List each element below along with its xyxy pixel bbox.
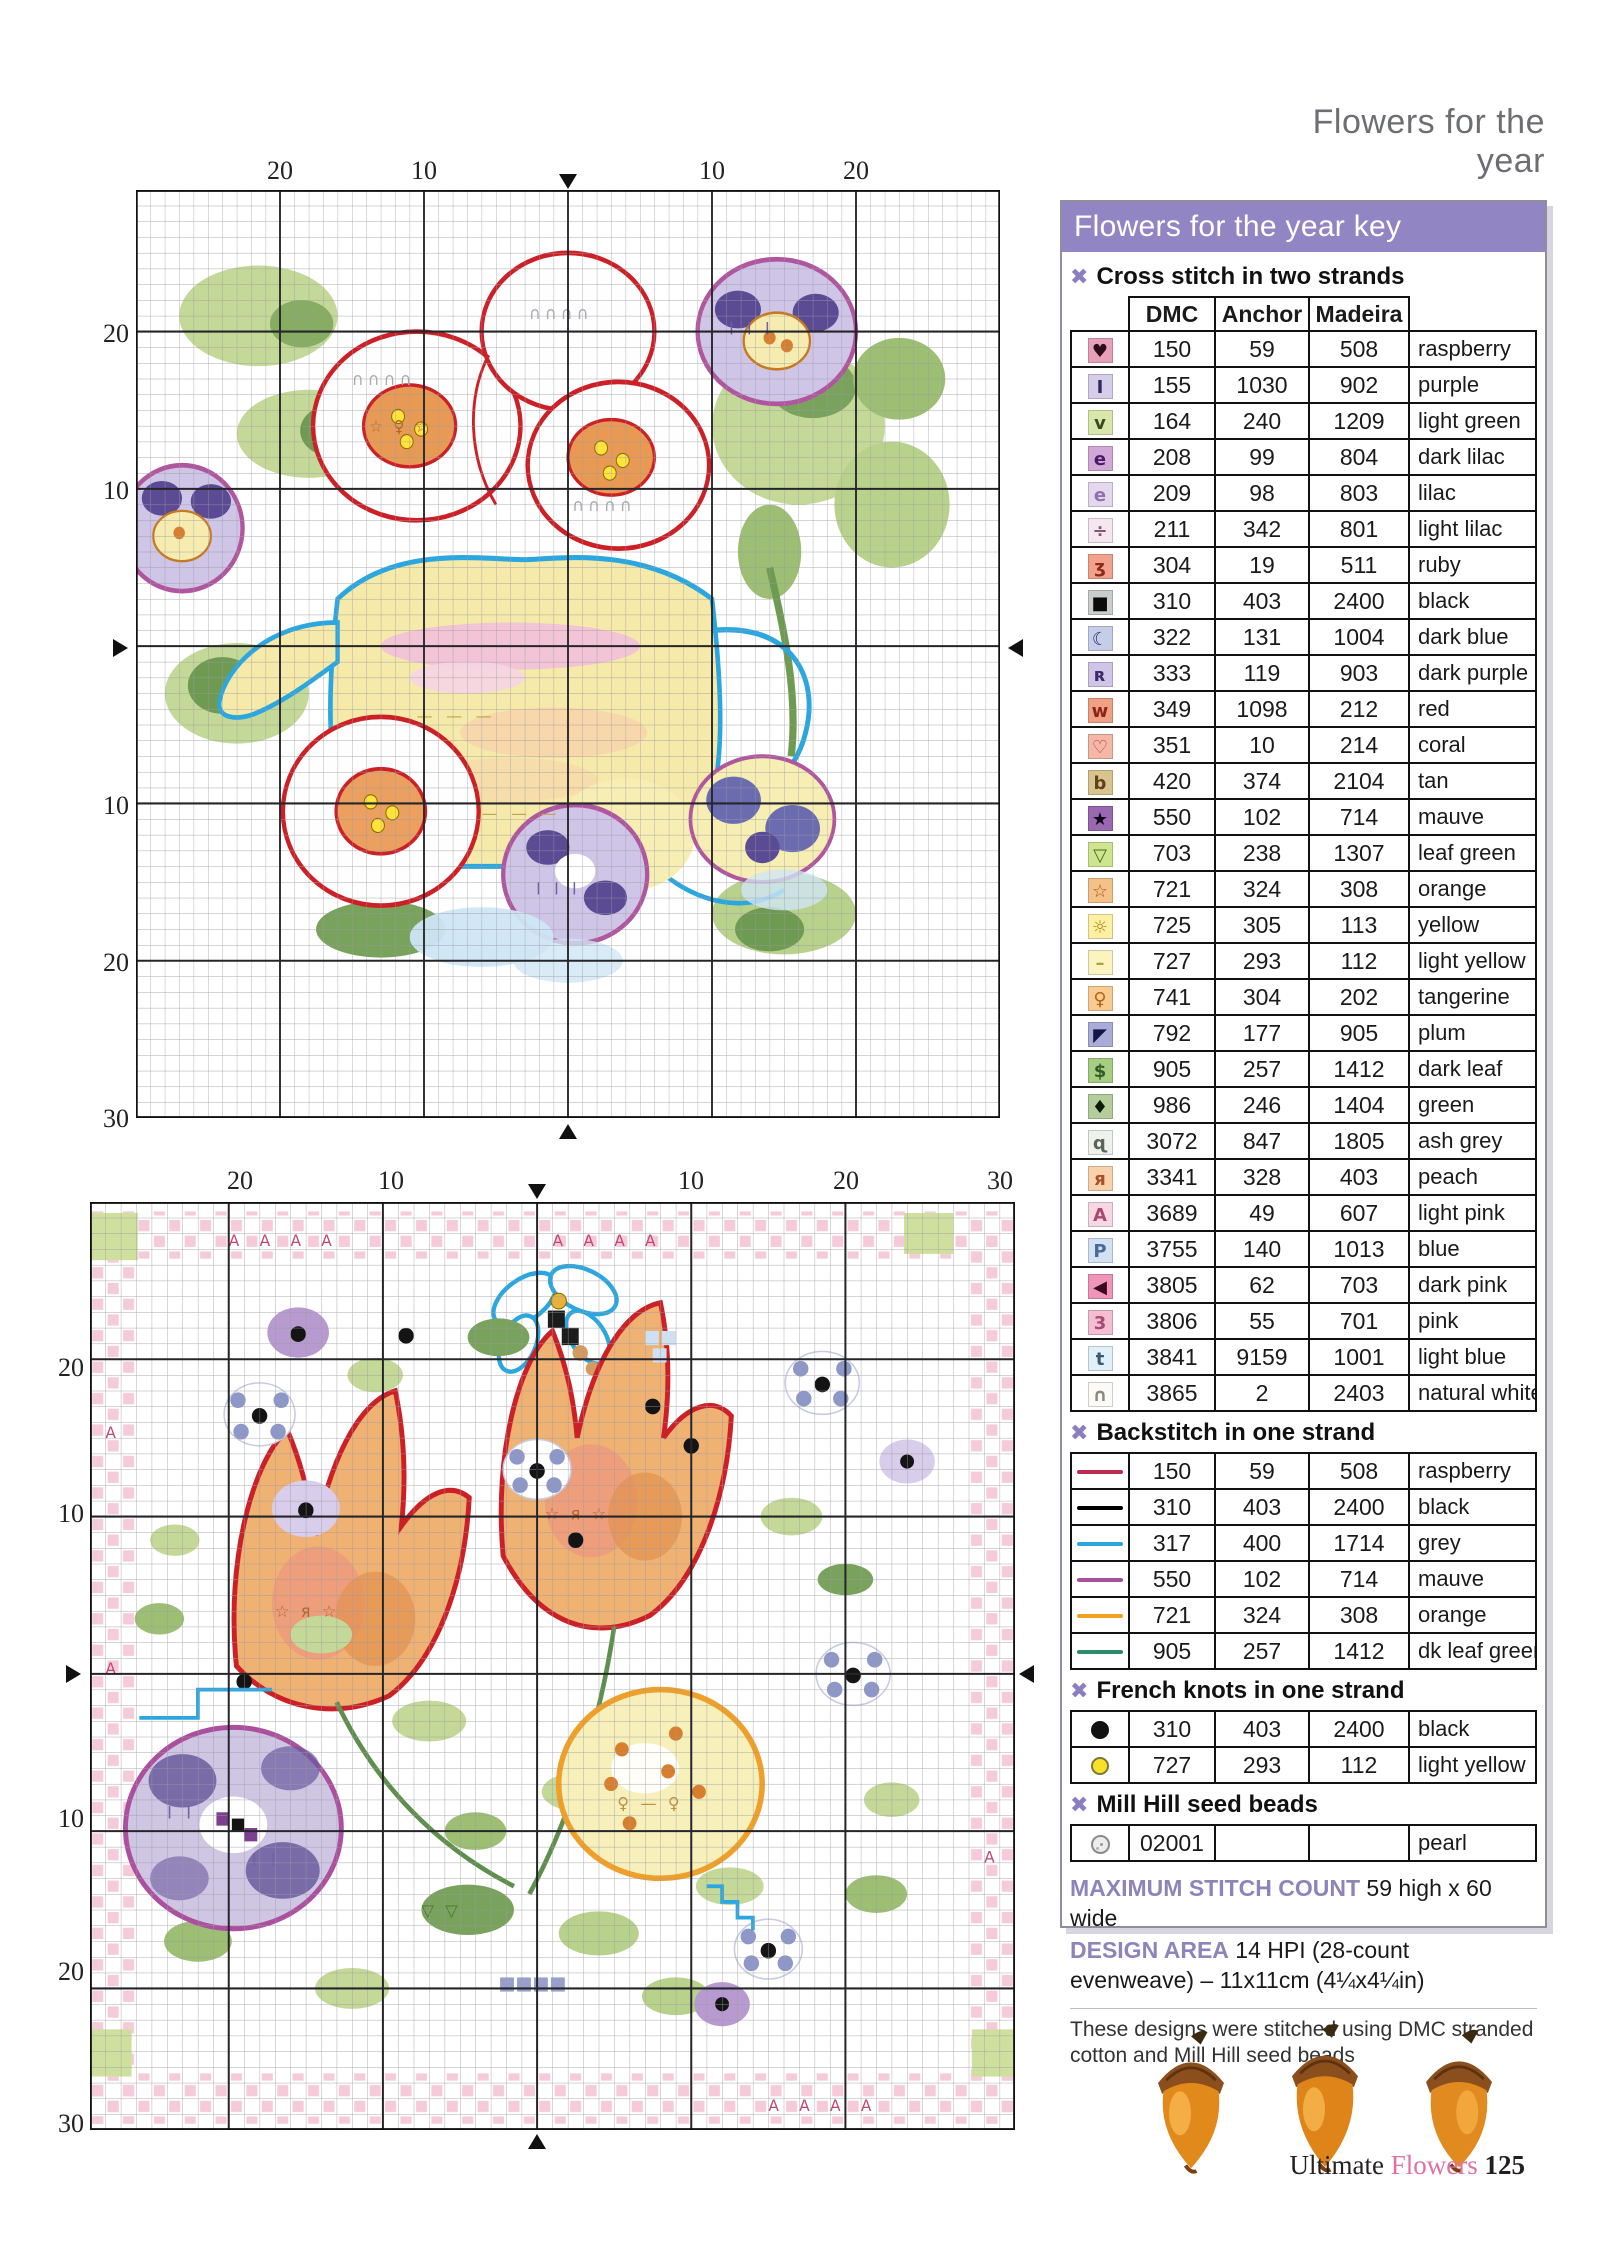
- chart-tulip-wreath: 20 10 10 20 30 20 10 10 20 30: [50, 1160, 1064, 2174]
- anchor-code: 304: [1215, 979, 1309, 1015]
- madeira-code: 804: [1309, 439, 1409, 475]
- axis-tick: 10: [671, 1166, 711, 1196]
- backstitch-table: 150 59 508 raspberry 310 403 2400 black: [1070, 1452, 1537, 1670]
- madeira-code: 508: [1309, 331, 1409, 367]
- table-row: ♀ 741 304 202 tangerine: [1071, 979, 1536, 1015]
- axis-tick: 30: [50, 2109, 84, 2139]
- table-header-row: DMC Anchor Madeira: [1071, 297, 1536, 331]
- madeira-code: 701: [1309, 1303, 1409, 1339]
- table-row: b 420 374 2104 tan: [1071, 763, 1536, 799]
- stitch-symbol: ■: [1088, 590, 1113, 615]
- madeira-code: 511: [1309, 547, 1409, 583]
- section-cross-stitch: ✖ Cross stitch in two strands: [1070, 256, 1537, 296]
- colour-name: orange: [1409, 1597, 1536, 1633]
- stitch-symbol: b: [1088, 770, 1113, 795]
- seed-beads-table: 02001 pearl: [1070, 1824, 1537, 1862]
- cross-stitch-icon: ✖: [1070, 1421, 1088, 1446]
- madeira-code: 905: [1309, 1015, 1409, 1051]
- table-row: ☾ 322 131 1004 dark blue: [1071, 619, 1536, 655]
- table-row: ♦ 986 246 1404 green: [1071, 1087, 1536, 1123]
- madeira-code: 714: [1309, 1561, 1409, 1597]
- dmc-code: 3341: [1129, 1159, 1215, 1195]
- stitch-symbol: P: [1088, 1238, 1113, 1263]
- center-arrow-bottom-icon: [528, 2134, 546, 2149]
- madeira-code: 508: [1309, 1453, 1409, 1489]
- anchor-code: 847: [1215, 1123, 1309, 1159]
- colour-name: black: [1409, 1489, 1536, 1525]
- table-row: 310 403 2400 black: [1071, 1711, 1536, 1747]
- colour-name: black: [1409, 583, 1536, 619]
- center-arrow-right-icon: [1019, 1665, 1034, 1683]
- axis-tick: 30: [95, 1104, 129, 1134]
- french-knots-table: 310 403 2400 black 727 293 112 light yel…: [1070, 1710, 1537, 1784]
- axis-tick: 10: [50, 1804, 84, 1834]
- colour-name: yellow: [1409, 907, 1536, 943]
- footer-brand: Ultimate: [1290, 2150, 1384, 2180]
- axis-tick: 30: [980, 1166, 1020, 1196]
- anchor-code: 240: [1215, 403, 1309, 439]
- madeira-code: 2400: [1309, 1711, 1409, 1747]
- anchor-code: 9159: [1215, 1339, 1309, 1375]
- colour-name: peach: [1409, 1159, 1536, 1195]
- axis-tick: 20: [50, 1353, 84, 1383]
- table-row: 317 400 1714 grey: [1071, 1525, 1536, 1561]
- table-row: w 349 1098 212 red: [1071, 691, 1536, 727]
- page-number: 125: [1485, 2150, 1526, 2180]
- stitch-symbol: ▽: [1088, 842, 1113, 867]
- stitch-symbol: ʀ: [1088, 662, 1113, 687]
- dmc-code: 725: [1129, 907, 1215, 943]
- stitch-symbol: ♥: [1088, 338, 1113, 363]
- anchor-code: 374: [1215, 763, 1309, 799]
- dmc-code: 211: [1129, 511, 1215, 547]
- dmc-code: 304: [1129, 547, 1215, 583]
- center-arrow-left-icon: [66, 1665, 81, 1683]
- stitch-symbol: A: [1088, 1202, 1113, 1227]
- madeira-code: 1412: [1309, 1051, 1409, 1087]
- section-label: Backstitch in one strand: [1096, 1419, 1375, 1447]
- anchor-code: 305: [1215, 907, 1309, 943]
- anchor-code: 55: [1215, 1303, 1309, 1339]
- axis-tick: 20: [836, 156, 876, 186]
- table-row: ÷ 211 342 801 light lilac: [1071, 511, 1536, 547]
- table-row: ◤ 792 177 905 plum: [1071, 1015, 1536, 1051]
- table-row: ☆ 721 324 308 orange: [1071, 871, 1536, 907]
- madeira-code: 803: [1309, 475, 1409, 511]
- dmc-code: 741: [1129, 979, 1215, 1015]
- madeira-code: 1412: [1309, 1633, 1409, 1669]
- colour-name: lilac: [1409, 475, 1536, 511]
- axis-tick: 20: [50, 1957, 84, 1987]
- axis-tick: 10: [404, 156, 444, 186]
- french-knot-swatch: [1091, 1721, 1109, 1739]
- section-label: Cross stitch in two strands: [1096, 263, 1404, 291]
- dmc-code: 721: [1129, 871, 1215, 907]
- colour-name: mauve: [1409, 799, 1536, 835]
- stitch-symbol: ☼: [1088, 914, 1113, 939]
- dmc-code: 550: [1129, 1561, 1215, 1597]
- madeira-code: 902: [1309, 367, 1409, 403]
- backstitch-line-swatch: [1077, 1470, 1123, 1474]
- colour-name: blue: [1409, 1231, 1536, 1267]
- madeira-code: 112: [1309, 1747, 1409, 1783]
- axis-tick: 10: [371, 1166, 411, 1196]
- dmc-code: 155: [1129, 367, 1215, 403]
- anchor-code: 238: [1215, 835, 1309, 871]
- table-row: я 3341 328 403 peach: [1071, 1159, 1536, 1195]
- madeira-code: [1309, 1825, 1409, 1861]
- table-row: ▽ 703 238 1307 leaf green: [1071, 835, 1536, 871]
- colour-name: light blue: [1409, 1339, 1536, 1375]
- madeira-code: 1404: [1309, 1087, 1409, 1123]
- axis-tick: 20: [95, 319, 129, 349]
- table-row: I 155 1030 902 purple: [1071, 367, 1536, 403]
- backstitch-line-swatch: [1077, 1650, 1123, 1654]
- backstitch-line-swatch: [1077, 1506, 1123, 1510]
- colour-name: dark purple: [1409, 655, 1536, 691]
- column-header: DMC: [1129, 297, 1215, 331]
- madeira-code: 112: [1309, 943, 1409, 979]
- cross-stitch-table: DMC Anchor Madeira ♥ 150 59 508: [1070, 296, 1537, 1412]
- colour-name: tangerine: [1409, 979, 1536, 1015]
- table-row: e 208 99 804 dark lilac: [1071, 439, 1536, 475]
- stitch-symbol: $: [1088, 1058, 1113, 1083]
- axis-tick: 20: [826, 1166, 866, 1196]
- dmc-code: 208: [1129, 439, 1215, 475]
- dmc-code: 3755: [1129, 1231, 1215, 1267]
- stitch-symbol: ÷: [1088, 518, 1113, 543]
- backstitch-line-swatch: [1077, 1578, 1123, 1582]
- colour-name: tan: [1409, 763, 1536, 799]
- stitch-grid: ∩∩∩∩ ∩∩∩∩ ∩∩∩∩ — — — — — — I I I I I I ☆…: [136, 190, 1000, 1118]
- colour-name: light green: [1409, 403, 1536, 439]
- table-row: 905 257 1412 dk leaf green: [1071, 1633, 1536, 1669]
- axis-tick: 20: [220, 1166, 260, 1196]
- madeira-code: 1013: [1309, 1231, 1409, 1267]
- table-row: 150 59 508 raspberry: [1071, 1453, 1536, 1489]
- table-row: ★ 550 102 714 mauve: [1071, 799, 1536, 835]
- table-row: – 727 293 112 light yellow: [1071, 943, 1536, 979]
- dmc-code: 3689: [1129, 1195, 1215, 1231]
- dmc-code: 349: [1129, 691, 1215, 727]
- dmc-code: 986: [1129, 1087, 1215, 1123]
- anchor-code: 324: [1215, 871, 1309, 907]
- table-row: ɋ 3072 847 1805 ash grey: [1071, 1123, 1536, 1159]
- center-arrow-top-icon: [528, 1184, 546, 1199]
- column-header: Madeira: [1309, 297, 1409, 331]
- stitch-symbol: v: [1088, 410, 1113, 435]
- colour-name: raspberry: [1409, 1453, 1536, 1489]
- axis-tick: 10: [692, 156, 732, 186]
- anchor-code: 400: [1215, 1525, 1309, 1561]
- dmc-code: 209: [1129, 475, 1215, 511]
- cross-stitch-icon: ✖: [1070, 265, 1088, 290]
- page-title: Flowers for the year: [1245, 103, 1545, 181]
- table-row: 721 324 308 orange: [1071, 1597, 1536, 1633]
- dmc-code: 333: [1129, 655, 1215, 691]
- table-row: ■ 310 403 2400 black: [1071, 583, 1536, 619]
- anchor-code: 403: [1215, 1711, 1309, 1747]
- dmc-code: 3841: [1129, 1339, 1215, 1375]
- anchor-code: 328: [1215, 1159, 1309, 1195]
- dmc-code: 420: [1129, 763, 1215, 799]
- footer-brand-accent: Flowers: [1391, 2150, 1478, 2180]
- dmc-code: 727: [1129, 1747, 1215, 1783]
- section-label: Mill Hill seed beads: [1096, 1791, 1317, 1819]
- madeira-code: 2400: [1309, 583, 1409, 619]
- anchor-code: 403: [1215, 583, 1309, 619]
- dmc-code: 310: [1129, 1489, 1215, 1525]
- madeira-code: 703: [1309, 1267, 1409, 1303]
- stitch-symbol: ♀: [1088, 986, 1113, 1011]
- colour-name: leaf green: [1409, 835, 1536, 871]
- dmc-code: 317: [1129, 1525, 1215, 1561]
- dmc-code: 150: [1129, 331, 1215, 367]
- madeira-code: 2400: [1309, 1489, 1409, 1525]
- anchor-code: 49: [1215, 1195, 1309, 1231]
- dmc-code: 727: [1129, 943, 1215, 979]
- stitch-symbol: e: [1088, 482, 1113, 507]
- section-french-knots: ✖ French knots in one strand: [1070, 1670, 1537, 1710]
- colour-name: ruby: [1409, 547, 1536, 583]
- stitch-symbol: ∩: [1088, 1382, 1113, 1407]
- dmc-code: 3865: [1129, 1375, 1215, 1411]
- madeira-code: 212: [1309, 691, 1409, 727]
- colour-name: raspberry: [1409, 331, 1536, 367]
- stitch-symbol: я: [1088, 1166, 1113, 1191]
- colour-name: red: [1409, 691, 1536, 727]
- page-footer: Ultimate Flowers 125: [1255, 2150, 1525, 2181]
- french-knot-swatch: [1091, 1757, 1109, 1775]
- madeira-code: 308: [1309, 871, 1409, 907]
- stat-label: DESIGN AREA: [1070, 1937, 1229, 1963]
- madeira-code: 308: [1309, 1597, 1409, 1633]
- dmc-code: 703: [1129, 835, 1215, 871]
- stitch-symbol: I: [1088, 374, 1113, 399]
- dmc-code: 3806: [1129, 1303, 1215, 1339]
- table-row: ☼ 725 305 113 yellow: [1071, 907, 1536, 943]
- colour-name: black: [1409, 1711, 1536, 1747]
- anchor-code: 177: [1215, 1015, 1309, 1051]
- column-header: Anchor: [1215, 297, 1309, 331]
- section-seed-beads: ✖ Mill Hill seed beads: [1070, 1784, 1537, 1824]
- colour-name: light yellow: [1409, 943, 1536, 979]
- anchor-code: 59: [1215, 1453, 1309, 1489]
- colour-name: grey: [1409, 1525, 1536, 1561]
- table-row: t 3841 9159 1001 light blue: [1071, 1339, 1536, 1375]
- anchor-code: 1030: [1215, 367, 1309, 403]
- stitch-symbol: ◀: [1088, 1274, 1113, 1299]
- madeira-code: 1307: [1309, 835, 1409, 871]
- dmc-code: 310: [1129, 583, 1215, 619]
- madeira-code: 607: [1309, 1195, 1409, 1231]
- anchor-code: 119: [1215, 655, 1309, 691]
- table-row: ◀ 3805 62 703 dark pink: [1071, 1267, 1536, 1303]
- anchor-code: 59: [1215, 331, 1309, 367]
- table-row: P 3755 140 1013 blue: [1071, 1231, 1536, 1267]
- madeira-code: 1714: [1309, 1525, 1409, 1561]
- colour-name: mauve: [1409, 1561, 1536, 1597]
- dmc-code: 150: [1129, 1453, 1215, 1489]
- axis-tick: 10: [50, 1499, 84, 1529]
- center-arrow-left-icon: [113, 639, 128, 657]
- center-arrow-right-icon: [1008, 639, 1023, 657]
- madeira-code: 2104: [1309, 763, 1409, 799]
- cross-stitch-icon: ✖: [1070, 1793, 1088, 1818]
- stitch-grid: A A A A A A A A A A A A A A A I I I I ☆ …: [90, 1202, 1015, 2130]
- stitch-symbol: t: [1088, 1346, 1113, 1371]
- colour-name: dark lilac: [1409, 439, 1536, 475]
- anchor-code: 10: [1215, 727, 1309, 763]
- table-row: 02001 pearl: [1071, 1825, 1536, 1861]
- colour-name: dk leaf green: [1409, 1633, 1536, 1669]
- madeira-code: 1209: [1309, 403, 1409, 439]
- stitch-symbol: e: [1088, 446, 1113, 471]
- dmc-code: 351: [1129, 727, 1215, 763]
- anchor-code: 98: [1215, 475, 1309, 511]
- madeira-code: 1001: [1309, 1339, 1409, 1375]
- madeira-code: 801: [1309, 511, 1409, 547]
- madeira-code: 1805: [1309, 1123, 1409, 1159]
- anchor-code: 19: [1215, 547, 1309, 583]
- anchor-code: 131: [1215, 619, 1309, 655]
- colour-name: orange: [1409, 871, 1536, 907]
- anchor-code: 257: [1215, 1633, 1309, 1669]
- anchor-code: 342: [1215, 511, 1309, 547]
- table-row: e 209 98 803 lilac: [1071, 475, 1536, 511]
- axis-tick: 10: [95, 476, 129, 506]
- section-backstitch: ✖ Backstitch in one strand: [1070, 1412, 1537, 1452]
- chart-teapot-bouquet: 20 10 10 20 20 10 10 20 30: [95, 150, 1073, 1162]
- table-row: ♡ 351 10 214 coral: [1071, 727, 1536, 763]
- dmc-code: 3072: [1129, 1123, 1215, 1159]
- madeira-code: 202: [1309, 979, 1409, 1015]
- stitch-symbol: –: [1088, 950, 1113, 975]
- axis-tick: 20: [95, 948, 129, 978]
- anchor-code: 403: [1215, 1489, 1309, 1525]
- dmc-code: 905: [1129, 1633, 1215, 1669]
- stat-label: MAXIMUM STITCH COUNT: [1070, 1875, 1360, 1901]
- colour-name: pink: [1409, 1303, 1536, 1339]
- colour-name: dark blue: [1409, 619, 1536, 655]
- center-arrow-bottom-icon: [559, 1124, 577, 1139]
- backstitch-line-swatch: [1077, 1614, 1123, 1618]
- anchor-code: 1098: [1215, 691, 1309, 727]
- colour-name: light lilac: [1409, 511, 1536, 547]
- anchor-code: 324: [1215, 1597, 1309, 1633]
- key-panel: Flowers for the year key ✖ Cross stitch …: [1060, 200, 1547, 1928]
- axis-tick: 20: [260, 156, 300, 186]
- stitch-symbol: ◤: [1088, 1022, 1113, 1047]
- colour-name: dark pink: [1409, 1267, 1536, 1303]
- colour-name: green: [1409, 1087, 1536, 1123]
- colour-name: coral: [1409, 727, 1536, 763]
- madeira-code: 403: [1309, 1159, 1409, 1195]
- magazine-page: Flowers for the year 20 10 10 20 20 10 1…: [0, 0, 1600, 2262]
- colour-name: natural white: [1409, 1375, 1536, 1411]
- table-row: 550 102 714 mauve: [1071, 1561, 1536, 1597]
- table-row: 310 403 2400 black: [1071, 1489, 1536, 1525]
- dmc-code: 310: [1129, 1711, 1215, 1747]
- stitch-symbol: ʒ: [1088, 554, 1113, 579]
- table-row: 3 3806 55 701 pink: [1071, 1303, 1536, 1339]
- section-label: French knots in one strand: [1096, 1677, 1404, 1705]
- dmc-code: 905: [1129, 1051, 1215, 1087]
- table-row: ʀ 333 119 903 dark purple: [1071, 655, 1536, 691]
- anchor-code: 257: [1215, 1051, 1309, 1087]
- table-row: ʒ 304 19 511 ruby: [1071, 547, 1536, 583]
- colour-name: purple: [1409, 367, 1536, 403]
- table-row: $ 905 257 1412 dark leaf: [1071, 1051, 1536, 1087]
- anchor-code: 246: [1215, 1087, 1309, 1123]
- colour-name: plum: [1409, 1015, 1536, 1051]
- dmc-code: 550: [1129, 799, 1215, 835]
- dmc-code: 3805: [1129, 1267, 1215, 1303]
- seed-bead-icon: [1091, 1835, 1110, 1854]
- anchor-code: 102: [1215, 1561, 1309, 1597]
- bead-code: 02001: [1129, 1825, 1215, 1861]
- anchor-code: 293: [1215, 1747, 1309, 1783]
- center-arrow-top-icon: [559, 174, 577, 189]
- colour-name: ash grey: [1409, 1123, 1536, 1159]
- design-stats: MAXIMUM STITCH COUNT 59 high x 60 wide D…: [1070, 1874, 1537, 1996]
- madeira-code: 714: [1309, 799, 1409, 835]
- madeira-code: 113: [1309, 907, 1409, 943]
- backstitch-line-swatch: [1077, 1542, 1123, 1546]
- colour-name: pearl: [1409, 1825, 1536, 1861]
- anchor-code: 102: [1215, 799, 1309, 835]
- colour-name: light pink: [1409, 1195, 1536, 1231]
- anchor-code: [1215, 1825, 1309, 1861]
- colour-name: light yellow: [1409, 1747, 1536, 1783]
- stitch-symbol: w: [1088, 698, 1113, 723]
- madeira-code: 1004: [1309, 619, 1409, 655]
- stitch-symbol: ɋ: [1088, 1130, 1113, 1155]
- cross-stitch-icon: ✖: [1070, 1679, 1088, 1704]
- table-row: A 3689 49 607 light pink: [1071, 1195, 1536, 1231]
- table-row: 727 293 112 light yellow: [1071, 1747, 1536, 1783]
- madeira-code: 2403: [1309, 1375, 1409, 1411]
- table-row: v 164 240 1209 light green: [1071, 403, 1536, 439]
- madeira-code: 903: [1309, 655, 1409, 691]
- table-row: ∩ 3865 2 2403 natural white: [1071, 1375, 1536, 1411]
- stitch-symbol: ★: [1088, 806, 1113, 831]
- dmc-code: 792: [1129, 1015, 1215, 1051]
- anchor-code: 293: [1215, 943, 1309, 979]
- key-title: Flowers for the year key: [1062, 202, 1545, 252]
- anchor-code: 2: [1215, 1375, 1309, 1411]
- axis-tick: 10: [95, 791, 129, 821]
- table-row: ♥ 150 59 508 raspberry: [1071, 331, 1536, 367]
- stitch-symbol: 3: [1088, 1310, 1113, 1335]
- stitch-symbol: ☾: [1088, 626, 1113, 651]
- stitch-symbol: ♡: [1088, 734, 1113, 759]
- stitch-symbol: ☆: [1088, 878, 1113, 903]
- dmc-code: 322: [1129, 619, 1215, 655]
- acorn-icon: [1136, 2020, 1246, 2190]
- dmc-code: 164: [1129, 403, 1215, 439]
- anchor-code: 99: [1215, 439, 1309, 475]
- anchor-code: 140: [1215, 1231, 1309, 1267]
- stitch-symbol: ♦: [1088, 1094, 1113, 1119]
- madeira-code: 214: [1309, 727, 1409, 763]
- anchor-code: 62: [1215, 1267, 1309, 1303]
- dmc-code: 721: [1129, 1597, 1215, 1633]
- colour-name: dark leaf: [1409, 1051, 1536, 1087]
